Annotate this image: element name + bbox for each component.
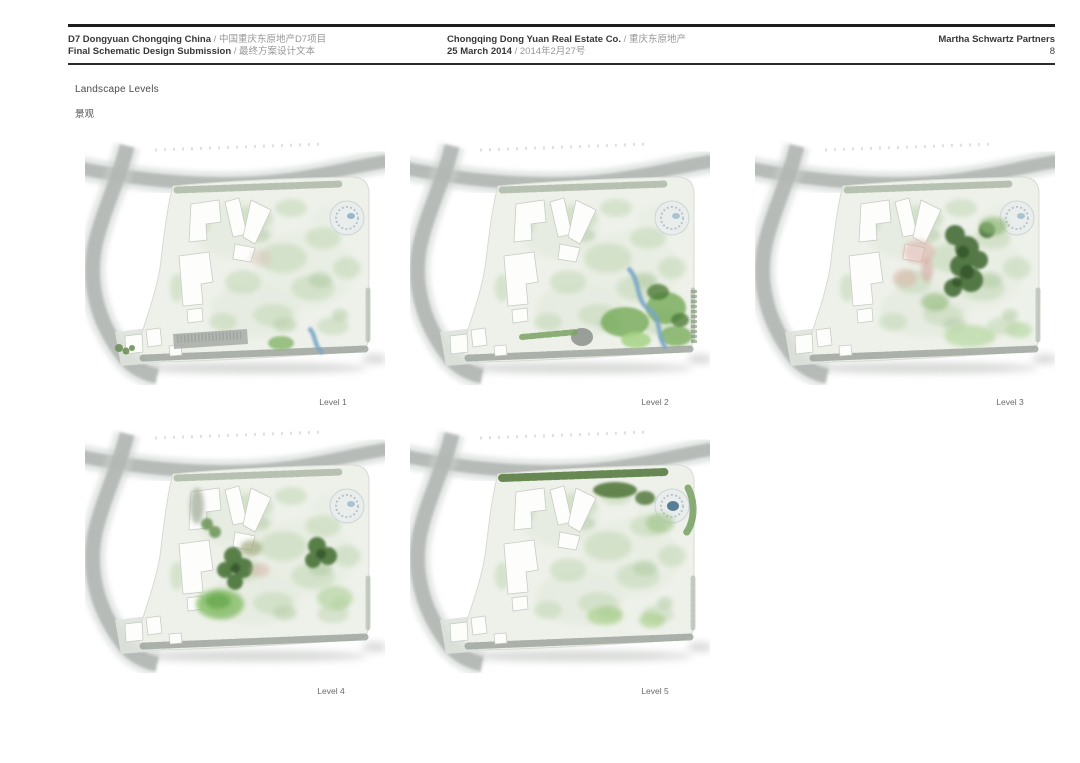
page-number: 8 <box>938 46 1055 58</box>
figure-label-level-5: Level 5 <box>615 686 695 696</box>
lawn-patch <box>268 336 294 350</box>
figure-label-level-1: Level 1 <box>293 397 373 407</box>
header-firm-block: Martha Schwartz Partners 8 <box>938 34 1055 57</box>
firm-name: Martha Schwartz Partners <box>938 34 1055 46</box>
plaza-water <box>347 501 355 507</box>
header-rule-bottom <box>68 63 1055 65</box>
site-plan-level-3 <box>755 140 1055 385</box>
figure-label-level-3: Level 3 <box>970 397 1050 407</box>
plaza-water <box>1017 213 1025 219</box>
plaza-water <box>672 213 680 219</box>
header-client-block: Chongqing Dong Yuan Real Estate Co. / 重庆… <box>447 34 686 57</box>
figure-label-level-2: Level 2 <box>615 397 695 407</box>
submission-line: Final Schematic Design Submission / 最终方案… <box>68 46 326 58</box>
header-project-block: D7 Dongyuan Chongqing China / 中国重庆东原地产D7… <box>68 34 326 57</box>
site-plan-level-4 <box>85 428 385 673</box>
section-title-zh: 景观 <box>75 106 94 120</box>
site-plan-level-2 <box>410 140 710 385</box>
site-plan-level-5 <box>410 428 710 673</box>
plaza-water <box>667 501 679 511</box>
project-title-line: D7 Dongyuan Chongqing China / 中国重庆东原地产D7… <box>68 34 326 46</box>
site-plan-level-1 <box>85 140 385 385</box>
document-page: D7 Dongyuan Chongqing China / 中国重庆东原地产D7… <box>0 0 1080 763</box>
plaza-water <box>347 213 355 219</box>
client-line: Chongqing Dong Yuan Real Estate Co. / 重庆… <box>447 34 686 46</box>
section-title: Landscape Levels <box>75 84 159 95</box>
figure-label-level-4: Level 4 <box>291 686 371 696</box>
date-line: 25 March 2014 / 2014年2月27号 <box>447 46 686 58</box>
header-rule-top <box>68 24 1055 27</box>
